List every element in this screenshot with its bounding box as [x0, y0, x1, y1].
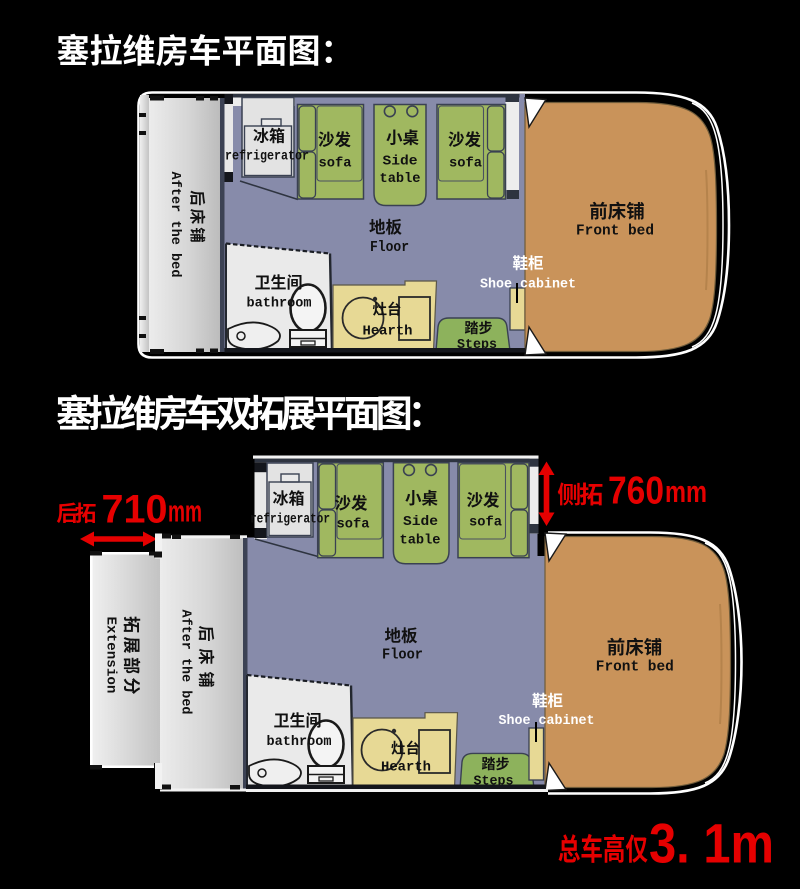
svg-text:Shoe cabinet: Shoe cabinet [480, 278, 576, 293]
svg-text:灶台: 灶台 [373, 299, 402, 320]
svg-text:沙发: 沙发 [467, 487, 501, 511]
svg-text:沙发: 沙发 [448, 127, 482, 151]
svg-text:table: table [400, 533, 441, 549]
svg-text:refrigerator: refrigerator [250, 513, 330, 528]
svg-text:沙发: 沙发 [318, 127, 352, 151]
svg-text:sofa: sofa [337, 517, 371, 533]
svg-text:地板: 地板 [385, 623, 419, 647]
svg-text:鞋柜: 鞋柜 [532, 689, 563, 711]
svg-text:前床铺: 前床铺 [607, 634, 663, 660]
svg-text:bathroom: bathroom [247, 296, 312, 312]
svg-text:Front bed: Front bed [596, 660, 674, 676]
svg-text:地板: 地板 [369, 214, 403, 238]
svg-text:mm: mm [168, 493, 202, 528]
svg-text:后床铺: 后床铺 [196, 625, 220, 694]
svg-text:鞋柜: 鞋柜 [512, 252, 543, 274]
svg-text:sofa: sofa [319, 156, 353, 172]
svg-text:卫生间: 卫生间 [273, 707, 321, 731]
svg-text:Extension: Extension [102, 617, 118, 694]
svg-text:后拓: 后拓 [56, 497, 96, 528]
svg-text:踏步: 踏步 [465, 318, 493, 338]
svg-text:sofa: sofa [449, 156, 483, 172]
svg-text:mm: mm [665, 474, 707, 509]
svg-text:小桌: 小桌 [386, 125, 420, 149]
svg-text:沙发: 沙发 [335, 490, 369, 514]
svg-text:总车高仅: 总车高仅 [558, 825, 648, 869]
svg-text:Hearth: Hearth [381, 760, 431, 776]
svg-text:sofa: sofa [469, 515, 503, 531]
svg-text:After the bed: After the bed [177, 610, 192, 715]
svg-text:Floor: Floor [370, 240, 409, 256]
svg-text:table: table [380, 171, 421, 187]
svg-text:Side: Side [403, 514, 438, 530]
svg-text:塞拉维房车平面图：: 塞拉维房车平面图： [57, 25, 354, 73]
svg-text:Hearth: Hearth [363, 324, 413, 340]
svg-text:760: 760 [608, 469, 664, 512]
svg-text:卫生间: 卫生间 [254, 269, 302, 293]
svg-text:Shoe cabinet: Shoe cabinet [499, 714, 595, 729]
svg-text:小桌: 小桌 [405, 485, 439, 509]
svg-text:bathroom: bathroom [267, 734, 332, 750]
svg-text:塞拉维房车双拓展平面图：: 塞拉维房车双拓展平面图： [56, 384, 445, 438]
svg-text:Front bed: Front bed [576, 224, 654, 240]
svg-text:踏步: 踏步 [482, 754, 510, 774]
svg-text:侧拓: 侧拓 [557, 475, 603, 510]
svg-text:冰箱: 冰箱 [253, 123, 285, 147]
svg-text:冰箱: 冰箱 [272, 485, 304, 509]
svg-text:3. 1m: 3. 1m [649, 812, 774, 875]
svg-text:refrigerator: refrigerator [225, 150, 309, 165]
svg-text:710: 710 [102, 487, 168, 531]
svg-text:前床铺: 前床铺 [589, 198, 645, 224]
svg-text:灶台: 灶台 [391, 738, 420, 759]
svg-text:拓展部分: 拓展部分 [121, 616, 146, 698]
svg-text:后床铺: 后床铺 [187, 190, 209, 246]
svg-text:Side: Side [383, 154, 418, 170]
svg-text:Floor: Floor [382, 648, 423, 664]
svg-text:After the bed: After the bed [167, 172, 182, 278]
